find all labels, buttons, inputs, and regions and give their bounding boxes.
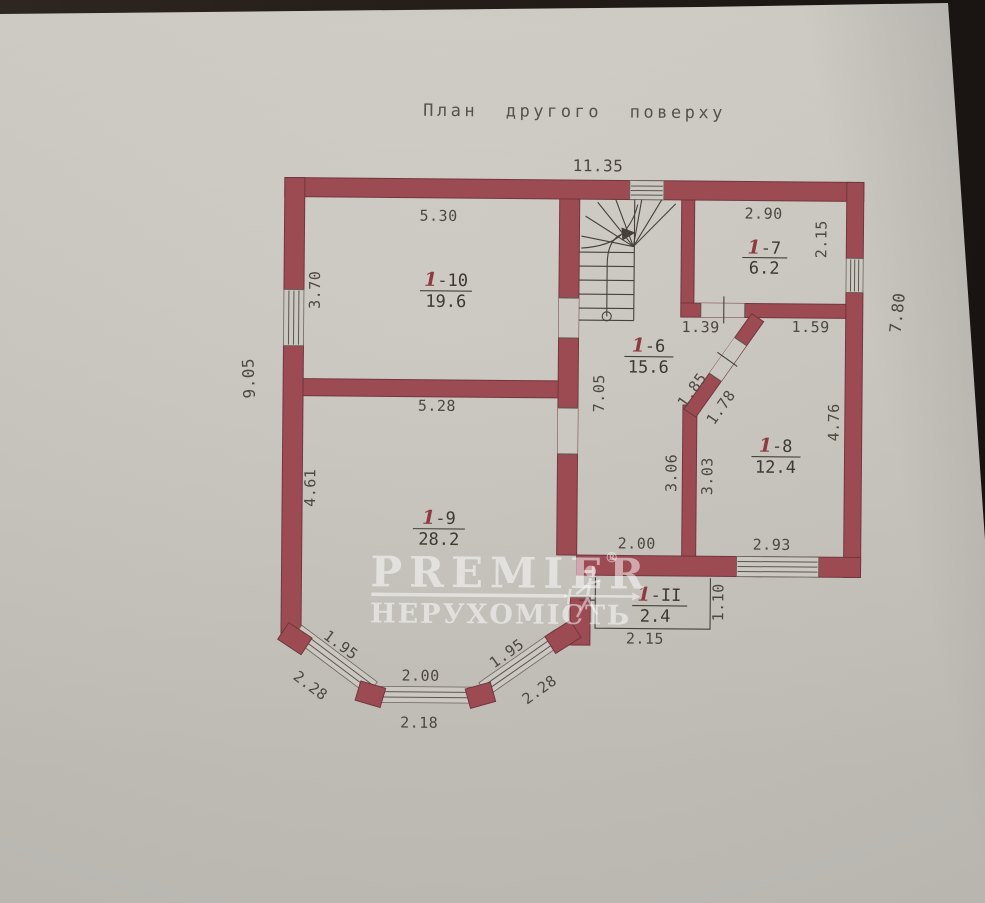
svg-text:1-8: 1-8 <box>759 435 793 457</box>
room7-prefix: 1 <box>747 237 760 259</box>
svg-text:1-9: 1-9 <box>422 507 456 529</box>
room6-area: 15.6 <box>628 358 669 378</box>
dim-balcony-width: 2.15 <box>626 629 664 647</box>
stair-walk-line <box>607 234 622 316</box>
dim-overall-right: 7.80 <box>886 292 909 334</box>
dim-room7-height: 2.15 <box>812 220 830 258</box>
dim-overall-left: 9.05 <box>238 358 259 399</box>
dim-overall-top: 11.35 <box>573 156 624 175</box>
wall-room10-room9 <box>303 379 558 398</box>
room7-label: 1-7 6.2 <box>742 236 787 278</box>
room11-number: -II <box>650 586 681 606</box>
wall-top <box>285 178 864 202</box>
svg-text:1-6: 1-6 <box>632 335 666 357</box>
wall-left-upper <box>284 178 305 290</box>
svg-text:1-7: 1-7 <box>747 237 781 259</box>
dim-hall-height: 7.05 <box>590 374 608 412</box>
stair-direction-arrow <box>621 227 635 240</box>
dim-bay-center-inner: 2.00 <box>401 667 439 685</box>
dim-room9-width: 5.28 <box>418 397 456 415</box>
watermark: PREMIER ® НЕРУХОМІСТЬ <box>370 547 651 631</box>
door-landing-room10 <box>559 298 579 338</box>
dim-bay-left-outer: 2.28 <box>290 667 331 704</box>
room8-label: 1-8 12.4 <box>751 435 800 478</box>
dim-door-to-room7: 1.39 <box>682 318 720 336</box>
door-hall-room9 <box>558 408 578 454</box>
watermark-subtitle: НЕРУХОМІСТЬ <box>370 598 631 631</box>
room10-number: -10 <box>437 271 468 291</box>
wall-right-upper <box>846 182 864 258</box>
room10-area: 19.6 <box>425 292 466 312</box>
room10-label: 1-10 19.6 <box>420 269 472 312</box>
wall-left-lower <box>281 345 304 635</box>
dim-room8-left-height: 3.03 <box>698 457 716 495</box>
photo-scene: План другого поверху <box>0 0 985 903</box>
bay-pillar <box>465 682 495 708</box>
watermark-registered-icon: ® <box>605 550 619 566</box>
door-room7 <box>701 303 745 317</box>
dim-room8-height: 4.76 <box>825 403 843 441</box>
room10-prefix: 1 <box>424 269 437 291</box>
room8-number: -8 <box>772 437 793 457</box>
room8-prefix: 1 <box>759 435 772 457</box>
room9-number: -9 <box>435 509 456 529</box>
room7-area: 6.2 <box>749 259 780 279</box>
room9-prefix: 1 <box>422 507 435 529</box>
dim-hall-right-height: 3.06 <box>662 454 680 492</box>
room6-prefix: 1 <box>632 335 645 357</box>
dim-balcony-height: 1.10 <box>709 583 727 621</box>
room6-number: -6 <box>645 337 666 357</box>
svg-text:1-10: 1-10 <box>424 269 468 291</box>
dim-room10-height: 3.70 <box>306 271 324 309</box>
bay-pillar <box>355 681 386 708</box>
floor-plan: План другого поверху <box>0 0 985 903</box>
dim-room8-top: 1.59 <box>792 318 830 336</box>
room8-area: 12.4 <box>755 458 796 478</box>
wall-hall-left <box>557 199 580 555</box>
room6-label: 1-6 15.6 <box>624 334 673 377</box>
wall-right-lower <box>843 292 862 577</box>
dim-room8-width: 2.93 <box>753 536 791 554</box>
dim-bay-right-outer: 2.28 <box>519 671 560 708</box>
dim-room10-width: 5.30 <box>419 207 457 225</box>
room9-label: 1-9 28.2 <box>413 507 465 550</box>
plan-title: План другого поверху <box>423 101 726 124</box>
dim-room9-height: 4.61 <box>301 469 319 507</box>
room11-area: 2.4 <box>640 607 671 627</box>
room7-number: -7 <box>761 239 782 259</box>
dim-bay-center-outer: 2.18 <box>400 714 438 732</box>
staircase <box>579 199 676 321</box>
watermark-divider <box>371 594 566 596</box>
dim-room7-width: 2.90 <box>744 205 782 223</box>
wall-room7-left <box>681 200 695 303</box>
wall-hall-room8 <box>682 405 697 556</box>
